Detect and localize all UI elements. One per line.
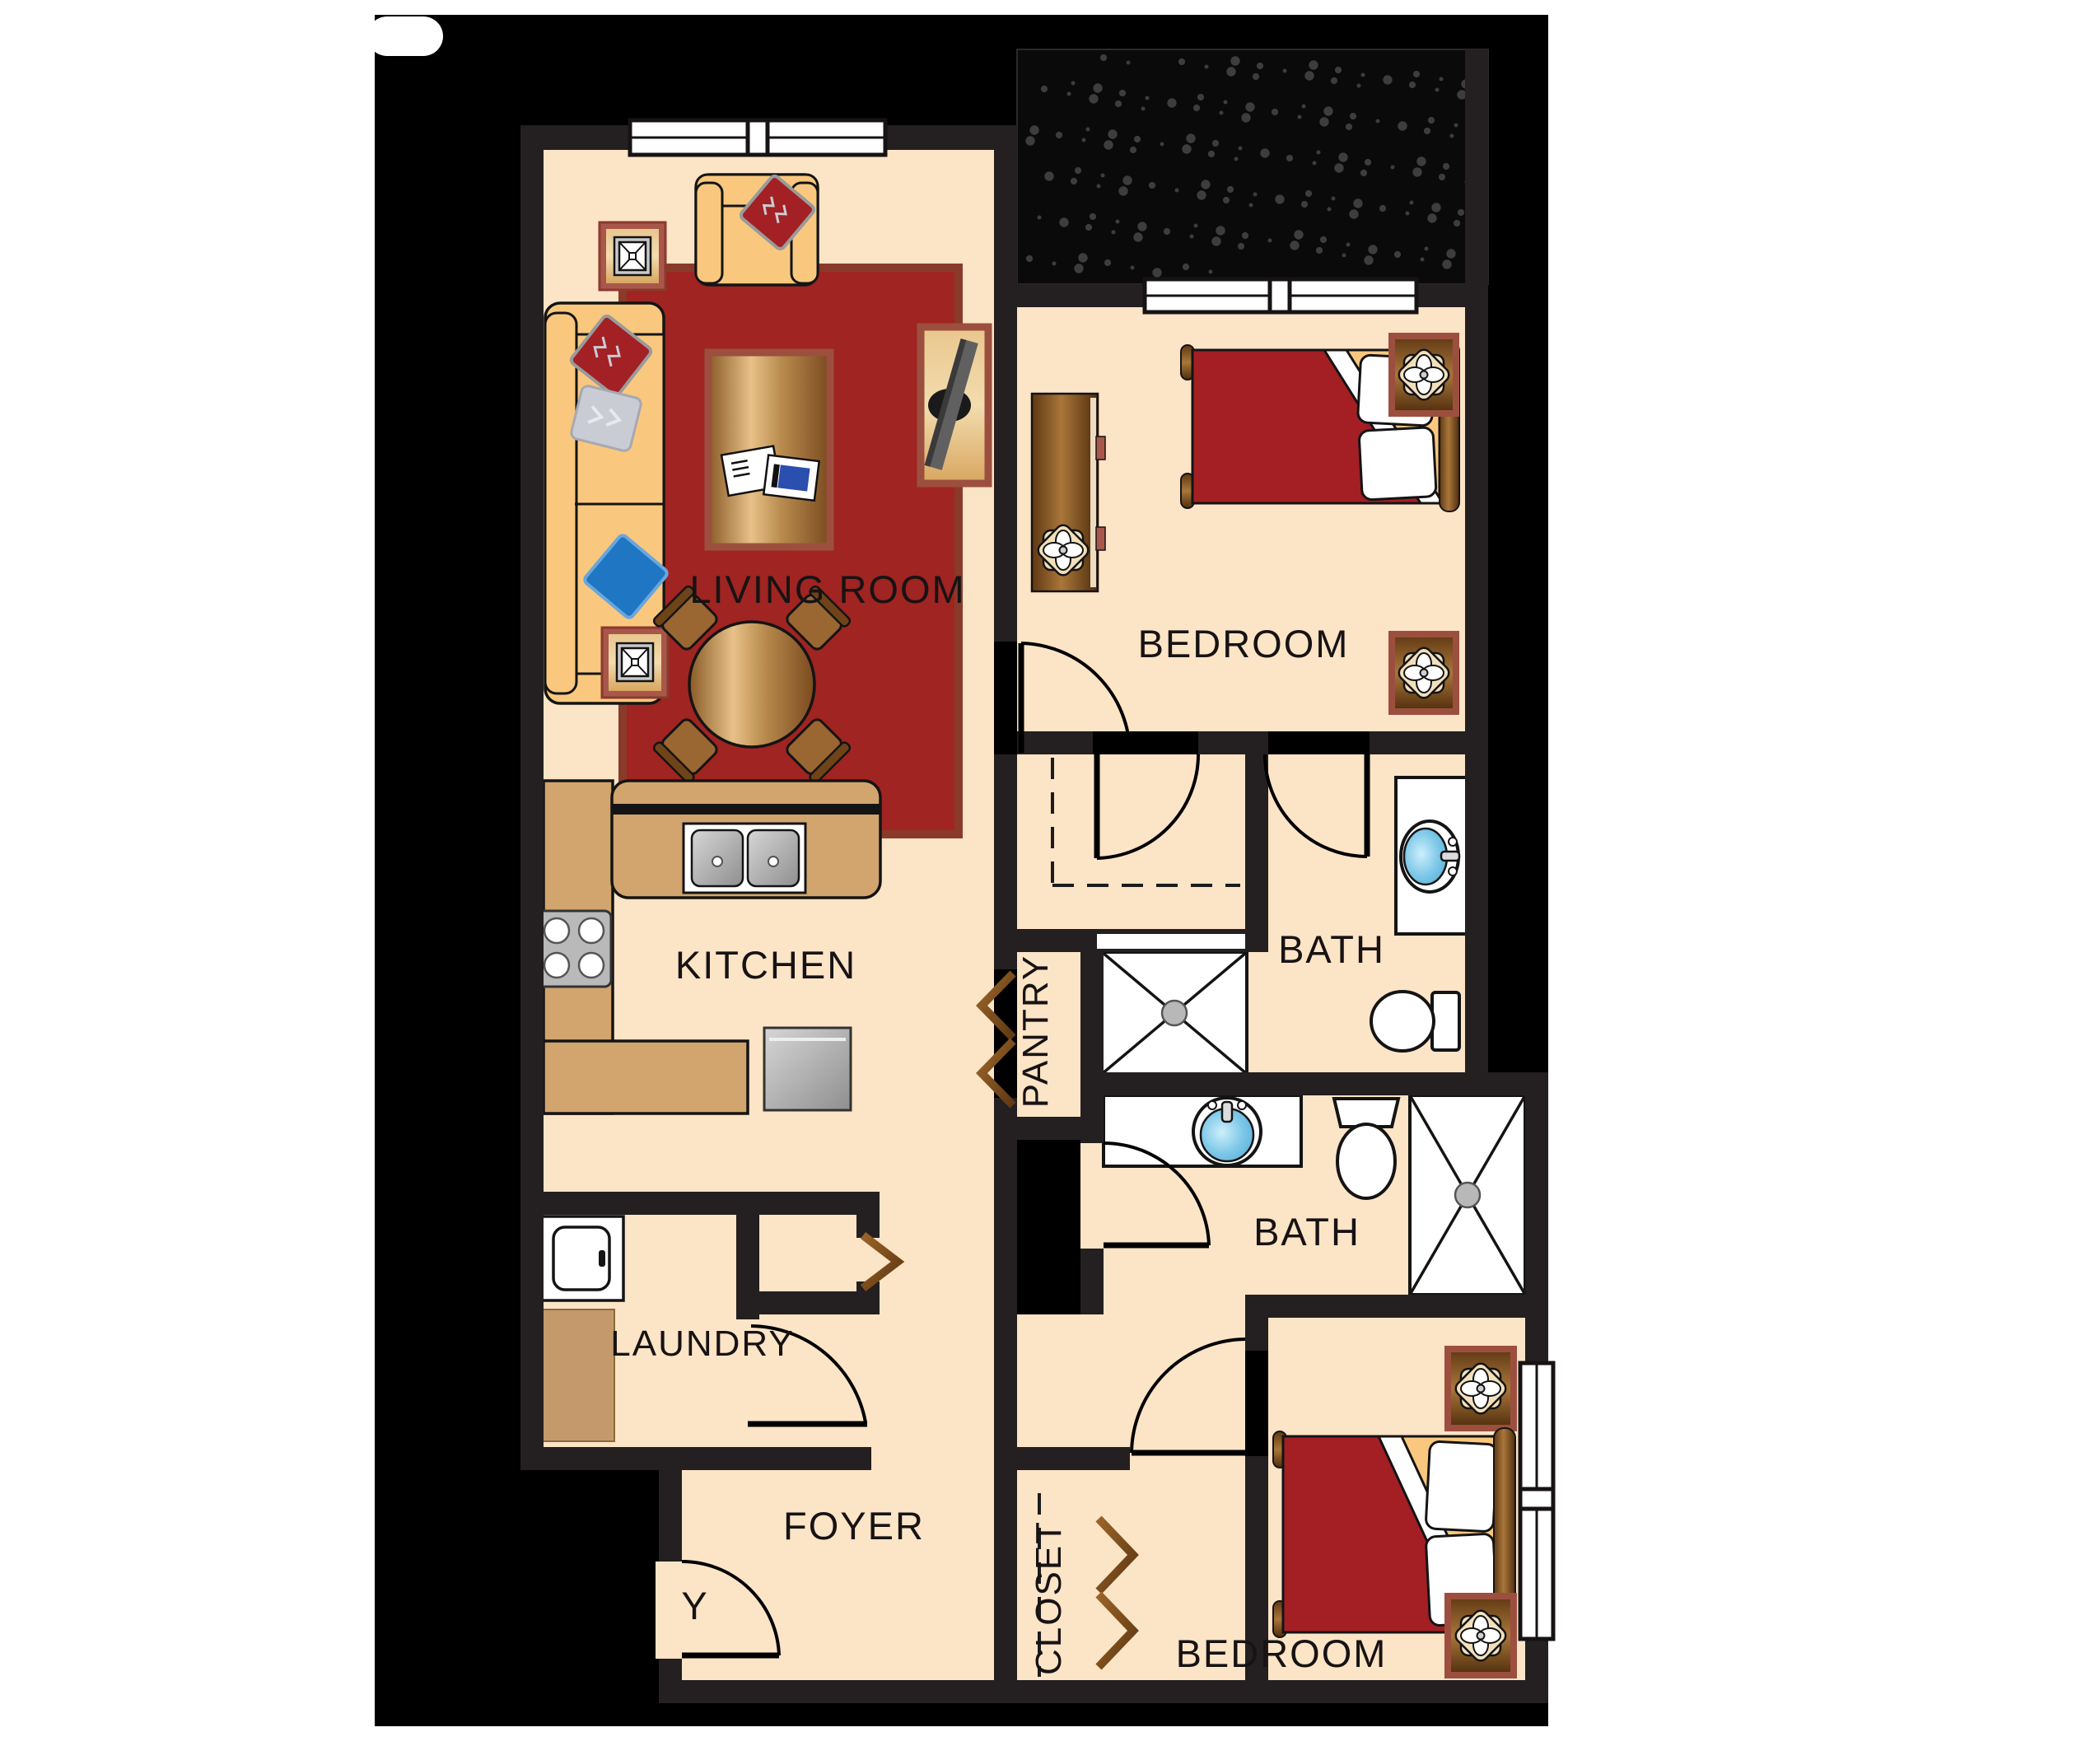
speckle-dot <box>1394 251 1401 258</box>
speckle-dot <box>1130 147 1136 153</box>
speckle-dot <box>1220 111 1224 115</box>
speckle-dot <box>1409 82 1416 88</box>
speckle-dot <box>1067 92 1071 96</box>
speckle-dot <box>1194 224 1198 228</box>
speckle-dot <box>1283 69 1287 73</box>
speckle-dot <box>1416 156 1426 166</box>
speckle-dot <box>1090 213 1096 220</box>
speckle-dot <box>1349 209 1358 218</box>
speckle-dot <box>1075 167 1081 174</box>
speckle-dot <box>1074 264 1083 273</box>
speckle-dot <box>1226 67 1235 76</box>
speckle-dot <box>1115 100 1122 107</box>
speckle-dot <box>1443 163 1449 170</box>
speckle-dot <box>1376 119 1380 124</box>
vanity-sink-icon <box>1396 777 1470 934</box>
speckle-dot <box>1286 155 1293 161</box>
speckle-dot <box>1193 105 1200 111</box>
speckle-dot <box>1457 90 1466 99</box>
speckle-dot <box>1435 88 1440 92</box>
tv-stand-icon <box>921 327 988 483</box>
nightstand-icon <box>1392 634 1456 712</box>
speckle-dot <box>1164 228 1170 235</box>
speckle-dot <box>1038 216 1042 220</box>
speckle-dot <box>1357 84 1361 88</box>
label-bedroom-top: BEDROOM <box>1138 622 1350 665</box>
speckle-dot <box>1253 73 1259 80</box>
speckle-dot <box>1424 128 1430 134</box>
label-foyer: FOYER <box>783 1504 925 1548</box>
speckle-dot <box>1137 222 1146 231</box>
window-icon <box>1520 1363 1553 1639</box>
speckle-dot <box>1116 220 1120 224</box>
speckle-dot <box>1086 128 1090 132</box>
speckle-dot <box>1041 86 1048 92</box>
speckle-dot <box>1328 208 1332 212</box>
speckle-dot <box>1182 144 1191 153</box>
speckle-dot <box>1245 102 1254 111</box>
speckle-dot <box>1413 71 1420 77</box>
label-living-room: LIVING ROOM <box>689 567 965 611</box>
toilet-icon <box>1371 992 1459 1051</box>
speckle-dot <box>1224 100 1228 105</box>
speckle-dot <box>1122 175 1132 184</box>
speckle-dot <box>1331 77 1337 84</box>
speckle-dot <box>1216 226 1225 235</box>
speckle-dot <box>1346 243 1351 247</box>
speckle-dot <box>1197 94 1204 100</box>
speckle-dot <box>1175 189 1179 193</box>
speckle-dot <box>1257 63 1263 69</box>
speckle-dot <box>1052 262 1057 266</box>
label-kitchen: KITCHEN <box>675 943 856 987</box>
speckle-dot <box>1412 167 1421 176</box>
speckle-dot <box>1383 75 1392 84</box>
coffee-table-icon <box>708 352 830 547</box>
speckle-dot <box>1239 147 1243 151</box>
speckle-dot <box>1118 186 1127 195</box>
speckle-dot <box>1323 106 1332 115</box>
speckle-dot <box>1152 268 1161 277</box>
nightstand-icon <box>1448 1349 1514 1428</box>
speckle-dot <box>1332 197 1336 201</box>
armchair-icon <box>696 175 818 285</box>
cropped-logo-fragment <box>367 16 443 56</box>
speckle-dot <box>1361 73 1365 77</box>
speckle-dot <box>1178 58 1185 65</box>
speckle-dot <box>1056 132 1062 138</box>
speckle-dot <box>1368 245 1377 254</box>
speckle-dot <box>1304 71 1314 80</box>
stove-icon <box>537 911 611 987</box>
speckle-dot <box>1319 117 1328 126</box>
speckle-dot <box>1301 201 1308 208</box>
speckle-dot <box>1272 109 1278 115</box>
speckle-dot <box>1294 230 1303 239</box>
drain-icon <box>1162 1001 1187 1025</box>
speckle-dot <box>1364 255 1373 264</box>
toilet-icon <box>1334 1099 1398 1198</box>
speckle-dot <box>1338 152 1347 161</box>
speckle-dot <box>1391 166 1395 170</box>
speckle-dot <box>1425 247 1429 251</box>
label-closet: CLOSET <box>1029 1520 1069 1675</box>
speckle-dot <box>1097 184 1101 189</box>
speckle-dot <box>1104 140 1113 149</box>
dresser-icon <box>1032 394 1105 591</box>
end-table-lamp-icon <box>602 628 668 698</box>
label-pantry: PANTRY <box>1015 955 1056 1108</box>
vanity-sink-icon <box>1104 1095 1301 1166</box>
sink-icon <box>684 824 805 893</box>
label-bath-top: BATH <box>1278 927 1385 971</box>
speckle-dot <box>1134 136 1141 142</box>
window-icon <box>630 120 885 155</box>
speckle-dot <box>1029 125 1038 134</box>
speckle-dot <box>1406 212 1410 216</box>
balcony-area <box>1017 49 1488 284</box>
speckle-dot <box>1208 151 1215 157</box>
speckle-dot <box>1427 213 1436 222</box>
speckle-dot <box>1428 117 1435 124</box>
speckle-dot <box>1454 124 1458 128</box>
speckle-dot <box>1353 198 1362 208</box>
speckle-dot <box>1442 259 1451 268</box>
speckle-dot <box>1190 235 1194 239</box>
label-bath-bottom: BATH <box>1253 1210 1360 1253</box>
speckle-dot <box>1133 232 1142 241</box>
speckle-dot <box>1127 61 1131 65</box>
speckle-dot <box>1454 220 1460 226</box>
speckle-dot <box>1093 83 1102 92</box>
speckle-dot <box>1025 136 1034 145</box>
speckle-dot <box>1305 190 1312 197</box>
shower-icon <box>1410 1095 1525 1295</box>
speckle-dot <box>1205 65 1209 69</box>
speckle-dot <box>1059 217 1068 226</box>
speckle-dot <box>1082 138 1086 142</box>
dining-table-icon <box>689 622 814 747</box>
speckle-dot <box>1071 178 1077 184</box>
speckle-dot <box>1149 182 1155 189</box>
speckle-dot <box>1197 190 1206 199</box>
speckle-dot <box>1241 113 1250 122</box>
kitchen-counter <box>544 1041 748 1113</box>
speckle-dot <box>1410 201 1414 205</box>
speckle-dot <box>1089 94 1098 103</box>
speckle-dot <box>1360 170 1367 176</box>
speckle-dot <box>1026 255 1033 262</box>
speckle-dot <box>1044 171 1053 180</box>
speckle-dot <box>1227 186 1234 193</box>
speckle-dot <box>1346 124 1352 130</box>
speckle-dot <box>1260 148 1269 157</box>
speckle-dot <box>1313 161 1317 166</box>
shower-icon <box>1102 952 1247 1074</box>
speckle-dot <box>1071 82 1076 86</box>
speckle-dot <box>1183 264 1189 270</box>
shower-glass-gap <box>1097 934 1245 949</box>
speckle-dot <box>1167 98 1176 107</box>
speckle-dot <box>1146 96 1150 100</box>
speckle-dot <box>1100 54 1107 61</box>
speckle-dot <box>1119 90 1126 96</box>
window-icon <box>1145 279 1416 312</box>
speckle-dot <box>1350 113 1356 119</box>
floorplan-canvas: LIVING ROOM BEDROOM KITCHEN PANTRY BATH … <box>0 0 2100 1760</box>
speckle-dot <box>1209 270 1213 274</box>
dishwasher-icon <box>764 1028 851 1110</box>
speckle-dot <box>1335 67 1342 73</box>
speckle-dot <box>1131 266 1135 270</box>
speckle-dot <box>1439 174 1445 180</box>
speckle-dot <box>1275 194 1284 203</box>
speckle-dot <box>1334 163 1343 172</box>
nightstand-icon <box>1448 1596 1514 1675</box>
speckle-dot <box>1309 60 1318 69</box>
speckle-dot <box>1141 107 1146 111</box>
speckle-dot <box>1446 249 1455 258</box>
speckle-dot <box>1268 239 1272 243</box>
speckle-dot <box>1101 174 1105 178</box>
speckle-dot <box>1365 159 1371 166</box>
speckle-dot <box>1398 121 1407 130</box>
speckle-dot <box>1242 232 1248 239</box>
speckle-dot <box>1238 243 1244 250</box>
label-bedroom-bottom: BEDROOM <box>1176 1632 1388 1675</box>
label-entry-partial: Y <box>681 1584 708 1627</box>
speckle-dot <box>1160 142 1164 147</box>
nightstand-icon <box>1392 336 1456 413</box>
end-table-lamp-icon <box>600 222 665 290</box>
speckle-dot <box>1440 77 1444 82</box>
kitchen-island <box>612 781 880 898</box>
speckle-dot <box>1379 205 1386 212</box>
speckle-dot <box>1450 134 1454 138</box>
speckle-dot <box>1211 236 1220 245</box>
speckle-dot <box>1431 203 1440 212</box>
speckle-dot <box>1212 140 1219 147</box>
speckle-dot <box>1104 259 1111 266</box>
speckle-dot <box>1316 247 1323 254</box>
speckle-dot <box>1201 180 1210 189</box>
label-laundry: LAUNDRY <box>610 1324 794 1364</box>
floorplan-svg: LIVING ROOM BEDROOM KITCHEN PANTRY BATH … <box>0 0 2100 1760</box>
speckle-dot <box>1298 115 1302 119</box>
speckle-dot <box>1230 56 1239 65</box>
speckle-dot <box>1223 197 1230 203</box>
drain-icon <box>1455 1183 1480 1207</box>
speckle-dot <box>1458 209 1464 216</box>
speckle-dot <box>1234 157 1239 161</box>
speckle-dot <box>1186 133 1195 142</box>
speckle-dot <box>1085 224 1092 231</box>
speckle-dot <box>1112 231 1116 235</box>
speckle-dot <box>1290 240 1299 250</box>
speckle-dot <box>1342 254 1346 258</box>
speckle-dot <box>1302 105 1306 109</box>
speckle-dot <box>1253 193 1258 197</box>
speckle-dot <box>1317 151 1321 155</box>
speckle-dot <box>1078 253 1087 262</box>
speckle-dot <box>1320 236 1327 243</box>
washer-icon <box>539 1216 623 1300</box>
speckle-dot <box>1421 258 1425 262</box>
speckle-dot <box>1249 203 1253 208</box>
speckle-dot <box>1108 129 1117 138</box>
